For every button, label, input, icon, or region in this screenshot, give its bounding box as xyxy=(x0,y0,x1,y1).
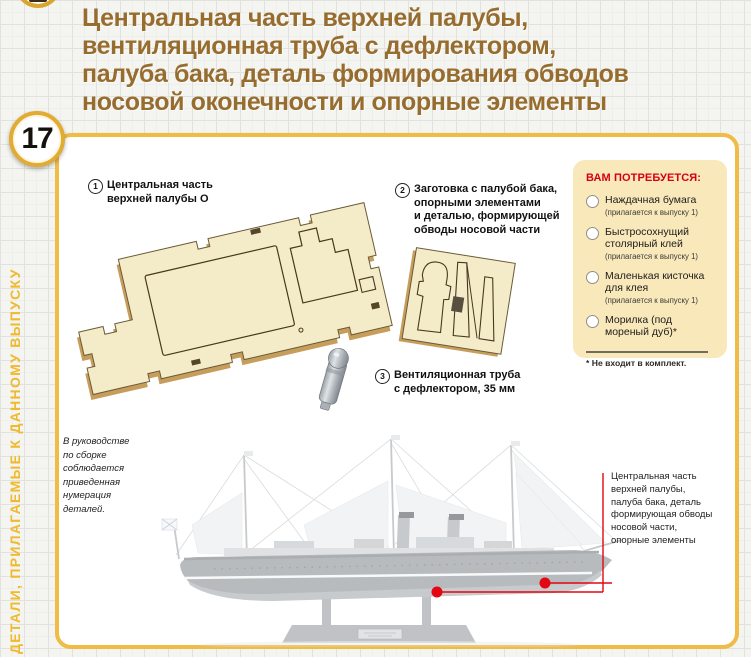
need-item-stain: Морилка (под мореный дуб)* xyxy=(586,314,717,339)
you-will-need-header: ВАМ ПОТРЕБУЕТСЯ: xyxy=(586,172,717,184)
vent-tube-image xyxy=(302,345,366,417)
title-line: палуба бака, деталь формирования обводов xyxy=(82,60,629,88)
page-title: Центральная часть верхней палубы, вентил… xyxy=(82,4,629,116)
need-name: Наждачная бумага xyxy=(605,194,698,207)
you-will-need-box: ВАМ ПОТРЕБУЕТСЯ: Наждачная бумага (прила… xyxy=(573,160,727,358)
part3-label-line: Вентиляционная труба xyxy=(394,369,520,383)
need-note: (прилагается к выпуску 1) xyxy=(605,208,698,217)
part2-label-line: и деталью, формирующей xyxy=(414,210,559,224)
need-name: Морилка (под мореный дуб)* xyxy=(605,314,717,339)
issue-number-badge: 17 xyxy=(9,111,65,167)
need-item-sandpaper: Наждачная бумага (прилагается к выпуску … xyxy=(586,194,717,217)
need-name: Маленькая кисточка для клея xyxy=(605,270,717,295)
checkbox-circle-icon xyxy=(586,315,599,328)
title-line: носовой оконечности и опорные элементы xyxy=(82,88,629,116)
part2-label: 2 Заготовка с палубой бака, опорными эле… xyxy=(395,183,559,237)
callout-dot xyxy=(432,587,443,598)
need-item-brush: Маленькая кисточка для клея (прилагается… xyxy=(586,270,717,305)
need-note: (прилагается к выпуску 1) xyxy=(605,296,717,305)
series-logo-icon xyxy=(15,0,61,8)
ship-callout-text: Центральная часть верхней палубы, палуба… xyxy=(611,471,712,548)
callout-dot xyxy=(540,578,551,589)
title-line: вентиляционная труба с дефлектором, xyxy=(82,32,629,60)
needs-footnote: * Не входит в комплект. xyxy=(586,358,717,368)
need-name: Быстросохнущий столярный клей xyxy=(605,226,717,251)
needs-divider xyxy=(586,351,708,353)
need-note: (прилагается к выпуску 1) xyxy=(605,252,717,261)
sidebar-vertical-label: ДЕТАЛИ, ПРИЛАГАЕМЫЕ К ДАННОМУ ВЫПУСКУ xyxy=(7,162,29,654)
magazine-page: Центральная часть верхней палубы, вентил… xyxy=(0,0,751,657)
checkbox-circle-icon xyxy=(586,195,599,208)
ship-photo xyxy=(154,429,624,647)
checkbox-circle-icon xyxy=(586,227,599,240)
content-panel: 1 Центральная часть верхней палубы О 2 З… xyxy=(55,133,739,649)
part2-label-line: обводы носовой части xyxy=(414,224,559,238)
part3-label-line: с дефлектором, 35 мм xyxy=(394,383,520,397)
checkbox-circle-icon xyxy=(586,271,599,284)
title-line: Центральная часть верхней палубы, xyxy=(82,4,629,32)
assembly-note: В руководстве по сборке соблюдается прив… xyxy=(63,435,129,516)
part2-label-line: опорными элементами xyxy=(414,197,559,211)
part2-plywood-sheet-image xyxy=(397,247,535,361)
issue-number: 17 xyxy=(21,122,52,156)
part2-label-line: Заготовка с палубой бака, xyxy=(414,183,559,197)
need-item-glue: Быстросохнущий столярный клей (прилагает… xyxy=(586,226,717,261)
